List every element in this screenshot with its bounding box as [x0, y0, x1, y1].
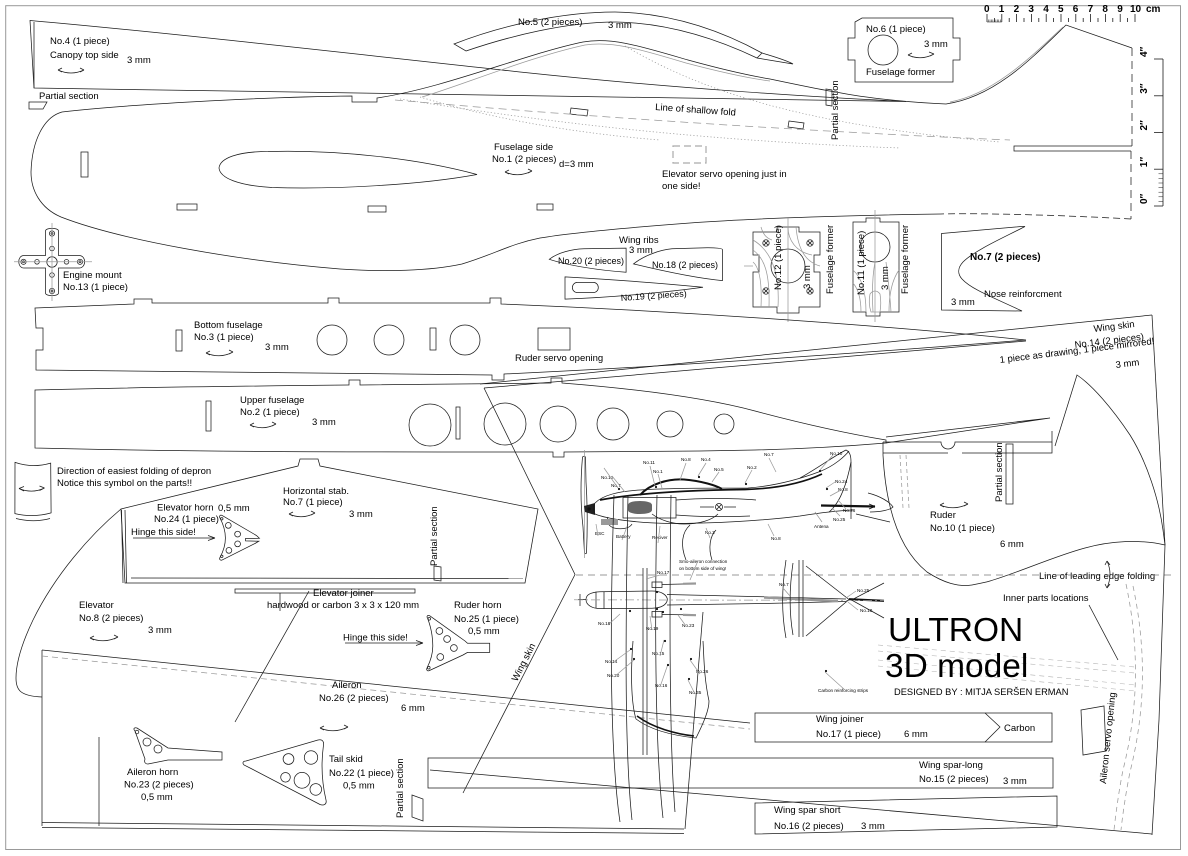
- svg-text:No.24: No.24: [835, 479, 848, 484]
- svg-text:Smo-aileron connection: Smo-aileron connection: [679, 559, 728, 564]
- svg-text:10: 10: [1130, 4, 1142, 15]
- svg-text:No.15: No.15: [652, 651, 665, 656]
- svg-text:ULTRON: ULTRON: [888, 612, 1023, 649]
- svg-text:8: 8: [1102, 4, 1108, 15]
- svg-text:No.20 (2 pieces): No.20 (2 pieces): [558, 256, 624, 266]
- svg-text:DESIGNED BY : MITJA SERŠEN ERM: DESIGNED BY : MITJA SERŠEN ERMAN: [894, 687, 1068, 697]
- svg-text:No.2: No.2: [747, 465, 757, 470]
- svg-text:No.11: No.11: [643, 460, 655, 465]
- svg-text:No.8 (2 pieces): No.8 (2 pieces): [79, 613, 143, 624]
- svg-text:3: 3: [1028, 4, 1034, 15]
- svg-text:No.7: No.7: [779, 582, 789, 587]
- svg-text:4: 4: [1043, 4, 1049, 15]
- svg-text:Aileron: Aileron: [332, 680, 362, 691]
- svg-text:No.1 (2 pieces): No.1 (2 pieces): [492, 154, 556, 165]
- svg-text:No.4 (1 piece): No.4 (1 piece): [50, 36, 110, 47]
- svg-text:Elevator: Elevator: [79, 600, 114, 611]
- svg-text:No.1: No.1: [653, 469, 663, 474]
- svg-text:No.5: No.5: [714, 467, 724, 472]
- svg-text:2″: 2″: [1139, 120, 1150, 131]
- svg-text:Partial section: Partial section: [39, 91, 99, 102]
- svg-text:6: 6: [1073, 4, 1079, 15]
- svg-text:Fuselage former: Fuselage former: [866, 67, 935, 78]
- svg-text:3″: 3″: [1139, 83, 1150, 94]
- svg-text:3 mm: 3 mm: [148, 625, 172, 636]
- svg-text:0,5 mm: 0,5 mm: [141, 792, 173, 803]
- svg-text:No.10 (1 piece): No.10 (1 piece): [930, 523, 995, 534]
- svg-text:Tail skid: Tail skid: [329, 754, 363, 765]
- svg-text:Inner parts locations: Inner parts locations: [1003, 593, 1089, 604]
- svg-text:3D model: 3D model: [885, 648, 1028, 685]
- svg-text:3 mm: 3 mm: [924, 39, 948, 50]
- svg-text:6 mm: 6 mm: [1000, 539, 1024, 550]
- svg-text:5: 5: [1058, 4, 1064, 15]
- svg-text:No.26 (2 pieces): No.26 (2 pieces): [319, 693, 389, 704]
- svg-text:No.26: No.26: [843, 508, 856, 513]
- svg-text:Carbon: Carbon: [1004, 723, 1035, 734]
- svg-text:No.8: No.8: [838, 487, 848, 492]
- svg-text:No.2 (1 piece): No.2 (1 piece): [240, 407, 300, 418]
- svg-text:No.19: No.19: [646, 626, 659, 631]
- svg-text:No.22 (1 piece): No.22 (1 piece): [329, 768, 394, 779]
- svg-text:Upper fuselage: Upper fuselage: [240, 395, 304, 406]
- svg-text:0,5 mm: 0,5 mm: [218, 503, 250, 514]
- svg-text:No.14: No.14: [605, 659, 618, 664]
- svg-text:3 mm: 3 mm: [880, 266, 891, 290]
- svg-text:Fuselage side: Fuselage side: [494, 142, 553, 153]
- svg-text:Wing joiner: Wing joiner: [816, 714, 864, 725]
- svg-text:Notice this symbol on the part: Notice this symbol on the parts!!: [57, 478, 192, 489]
- svg-text:Wing spar short: Wing spar short: [774, 805, 841, 816]
- svg-text:Wing spar-long: Wing spar-long: [919, 760, 983, 771]
- svg-text:No.17: No.17: [657, 570, 670, 575]
- svg-text:No.15 (2 pieces): No.15 (2 pieces): [919, 774, 989, 785]
- svg-text:Canopy top side: Canopy top side: [50, 50, 119, 61]
- svg-text:3 mm: 3 mm: [951, 297, 975, 308]
- svg-text:ESC: ESC: [595, 531, 605, 536]
- svg-text:Horizontal stab.: Horizontal stab.: [283, 486, 349, 497]
- svg-text:No.24 (1 piece): No.24 (1 piece): [154, 514, 219, 525]
- svg-text:No.18 (2 pieces): No.18 (2 pieces): [652, 260, 718, 270]
- svg-text:No.3 (1 piece): No.3 (1 piece): [194, 332, 254, 343]
- svg-text:No.25: No.25: [857, 588, 870, 593]
- svg-text:3 mm: 3 mm: [349, 509, 373, 520]
- svg-text:No.10: No.10: [860, 608, 873, 613]
- svg-text:Elevator joiner: Elevator joiner: [313, 588, 374, 599]
- svg-text:Bottom fuselage: Bottom fuselage: [194, 320, 263, 331]
- svg-text:hardwood or carbon 3 x 3 x 120: hardwood or carbon 3 x 3 x 120 mm: [267, 600, 419, 611]
- svg-text:Partial section: Partial section: [429, 506, 440, 566]
- svg-text:Hinge this side!: Hinge this side!: [343, 633, 408, 644]
- svg-text:0″: 0″: [1139, 193, 1150, 204]
- svg-text:No.12 (1 piece): No.12 (1 piece): [773, 225, 784, 290]
- svg-text:Line of leading edge folding: Line of leading edge folding: [1039, 571, 1155, 582]
- svg-text:4″: 4″: [1139, 46, 1150, 57]
- svg-text:cm: cm: [1146, 4, 1161, 15]
- svg-text:3 mm: 3 mm: [608, 20, 632, 31]
- svg-text:Antena: Antena: [814, 524, 829, 529]
- svg-text:0,5 mm: 0,5 mm: [343, 781, 375, 792]
- svg-text:No.25 (1 piece): No.25 (1 piece): [454, 614, 519, 625]
- svg-text:No.8: No.8: [771, 536, 781, 541]
- svg-text:Reciver: Reciver: [652, 535, 668, 540]
- svg-text:No.35: No.35: [689, 690, 702, 695]
- svg-text:No.7: No.7: [764, 452, 774, 457]
- svg-text:No.25: No.25: [833, 517, 846, 522]
- svg-text:Ruder horn: Ruder horn: [454, 600, 502, 611]
- svg-text:3 mm: 3 mm: [127, 55, 151, 66]
- svg-text:3 mm: 3 mm: [265, 342, 289, 353]
- svg-text:0: 0: [984, 4, 990, 15]
- svg-text:Partial section: Partial section: [830, 80, 841, 140]
- svg-text:No.23 (2 pieces): No.23 (2 pieces): [124, 780, 194, 791]
- svg-text:No.18: No.18: [598, 621, 611, 626]
- svg-text:No.5 (2 pieces): No.5 (2 pieces): [518, 17, 582, 28]
- svg-text:3 mm: 3 mm: [802, 265, 813, 289]
- svg-text:3 mm: 3 mm: [312, 417, 336, 428]
- svg-text:6 mm: 6 mm: [401, 703, 425, 714]
- svg-text:1″: 1″: [1139, 157, 1150, 168]
- svg-text:6 mm: 6 mm: [904, 729, 928, 740]
- svg-text:Hinge this side!: Hinge this side!: [131, 527, 196, 538]
- svg-text:Elevator horn: Elevator horn: [157, 503, 214, 514]
- svg-text:Partial section: Partial section: [994, 442, 1005, 502]
- svg-text:Partial section: Partial section: [395, 758, 406, 818]
- svg-text:No.8: No.8: [681, 457, 691, 462]
- svg-text:No.17 (1 piece): No.17 (1 piece): [816, 729, 881, 740]
- svg-text:Ruder: Ruder: [930, 510, 956, 521]
- svg-text:Engine mount: Engine mount: [63, 270, 122, 281]
- svg-text:Elevator servo opening just in: Elevator servo opening just in: [662, 169, 787, 180]
- svg-text:No.10: No.10: [830, 451, 843, 456]
- svg-text:No.6 (1 piece): No.6 (1 piece): [866, 24, 926, 35]
- svg-text:Nose reinforcment: Nose reinforcment: [984, 289, 1062, 300]
- svg-text:Aileron horn: Aileron horn: [127, 767, 178, 778]
- svg-text:No.11 (1 piece): No.11 (1 piece): [856, 231, 867, 295]
- svg-text:on bottom side of wing!: on bottom side of wing!: [679, 566, 726, 571]
- svg-text:Fuselage former: Fuselage former: [825, 225, 836, 294]
- svg-text:3 mm: 3 mm: [861, 821, 885, 832]
- svg-text:Direction of easiest folding o: Direction of easiest folding of depron: [57, 466, 211, 477]
- svg-text:No.4: No.4: [701, 457, 711, 462]
- svg-text:No.7 (1 piece): No.7 (1 piece): [283, 497, 343, 508]
- svg-text:2: 2: [1014, 4, 1020, 15]
- svg-text:9: 9: [1117, 4, 1123, 15]
- svg-text:Ruder servo opening: Ruder servo opening: [515, 353, 603, 364]
- svg-text:7: 7: [1088, 4, 1094, 15]
- svg-text:Fuselage former: Fuselage former: [900, 225, 911, 294]
- svg-text:0,5 mm: 0,5 mm: [468, 626, 500, 637]
- svg-text:3 mm: 3 mm: [1003, 776, 1027, 787]
- svg-text:d=3 mm: d=3 mm: [559, 159, 594, 170]
- svg-text:No.7 (2 pieces): No.7 (2 pieces): [970, 252, 1041, 263]
- svg-text:1: 1: [999, 4, 1005, 15]
- svg-text:No.16 (2 pieces): No.16 (2 pieces): [774, 821, 844, 832]
- svg-text:one side!: one side!: [662, 181, 701, 192]
- svg-text:No.13 (1 piece): No.13 (1 piece): [63, 282, 128, 293]
